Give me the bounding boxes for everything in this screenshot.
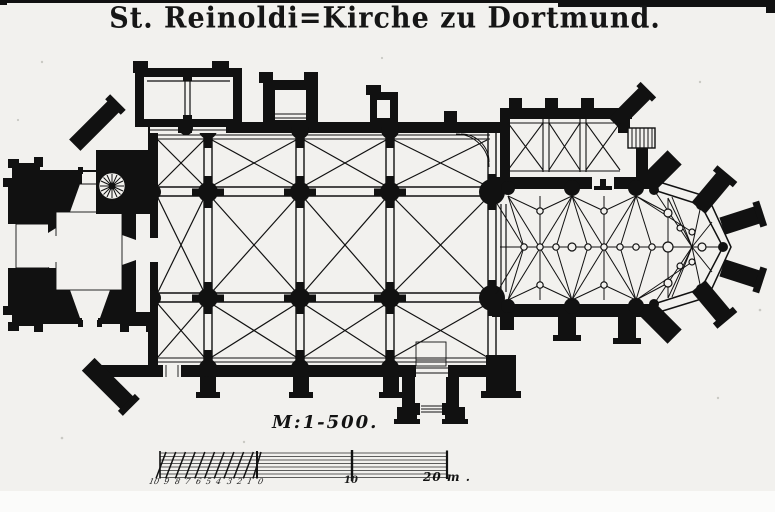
scale-number: 5 [205, 477, 212, 486]
choir-star-vault [496, 190, 723, 304]
scanned-plan-page: St. Reinoldi=Kirche zu Dortmund. M:1-500… [0, 0, 775, 512]
choir-north-door [592, 177, 614, 190]
north-annexes [259, 72, 398, 127]
scale-number: 0 [257, 477, 264, 486]
scale-number: 1 [247, 477, 254, 486]
floor-plan-drawing [0, 0, 775, 512]
scale-number: 9 [164, 477, 171, 486]
scale-end-label: 20 m . [423, 470, 471, 484]
scale-number: 4 [215, 477, 222, 486]
scale-bar-numbers: 109876543210 [149, 477, 263, 486]
north-chapel [133, 61, 242, 127]
scale-number: 6 [195, 477, 202, 486]
nave-piers [145, 121, 505, 377]
choir [492, 177, 723, 344]
south-porch [394, 342, 468, 424]
scale-number: 3 [226, 477, 233, 486]
scale-mid-tick-label: 10 [344, 475, 358, 486]
scale-number: 10 [148, 477, 160, 486]
sacristy-turret [607, 82, 656, 131]
scale-ratio-label: M:1-500. [272, 412, 378, 433]
nave-rib-diagonals [158, 140, 487, 357]
sacristy-stairs [628, 128, 655, 148]
west-porch [3, 176, 61, 319]
scale-number: 2 [236, 477, 243, 486]
sacristy [500, 82, 656, 180]
scan-edge-strip [0, 491, 775, 512]
scale-number: 8 [174, 477, 181, 486]
scale-bar-hatching [156, 452, 261, 479]
spiral-staircase [96, 150, 154, 214]
south-door [163, 365, 181, 377]
plan-title: St. Reinoldi=Kirche zu Dortmund. [75, 2, 695, 35]
scale-number: 7 [184, 477, 191, 486]
